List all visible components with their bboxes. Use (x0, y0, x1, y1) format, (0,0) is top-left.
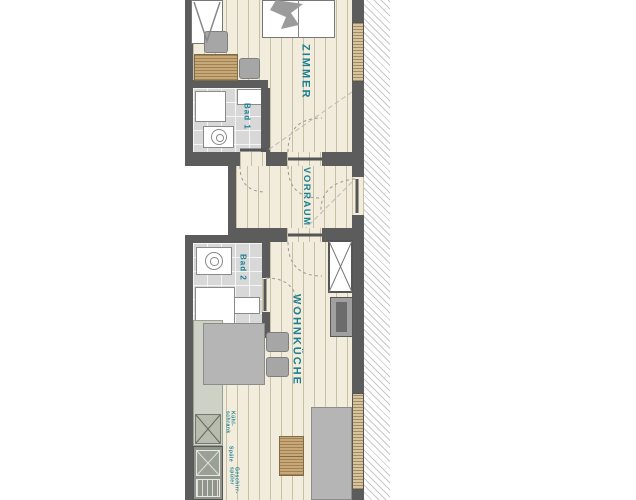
oven-x-icon (197, 451, 219, 475)
ceiling-slope-line (306, 182, 352, 228)
bed-blanket (270, 0, 303, 29)
door-swing-arc (240, 166, 266, 192)
floor-plan: ZIMMER VORRAUM WOHNKÜCHE Bad 1 Bad 2 Küh… (0, 0, 636, 500)
plan-symbols-overlay (0, 0, 636, 500)
cooktop-x-icon (196, 415, 220, 443)
hanger-icon (194, 2, 220, 41)
door-swing-arc (266, 278, 298, 310)
door-swing-arc (288, 242, 322, 276)
ceiling-slope-line (268, 92, 352, 150)
door-swing-arc (288, 166, 320, 198)
door-swing-arc (288, 118, 322, 152)
shaft-x-icon (329, 241, 352, 292)
